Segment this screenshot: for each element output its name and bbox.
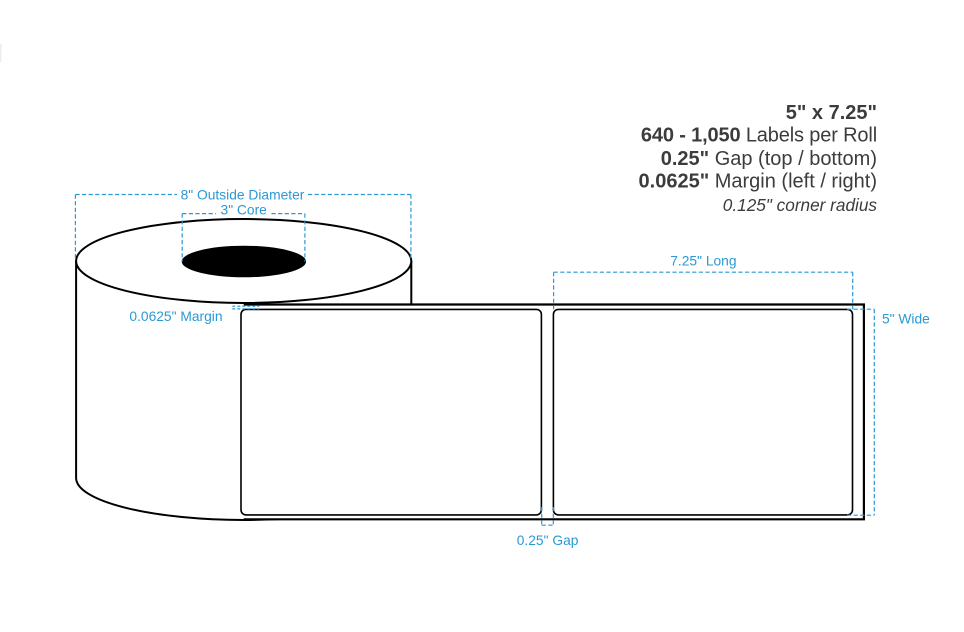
svg-text:5" x 7.25": 5" x 7.25" [786,102,877,124]
svg-text:0.0625" Margin (left / right): 0.0625" Margin (left / right) [639,171,877,193]
svg-text:3" Core: 3" Core [221,203,268,218]
svg-text:5" Wide: 5" Wide [882,312,930,327]
svg-text:0.25" Gap (top / bottom): 0.25" Gap (top / bottom) [661,148,877,170]
svg-text:7.25" Long: 7.25" Long [670,254,736,269]
svg-text:0.0625" Margin: 0.0625" Margin [129,309,222,324]
svg-text:8" Outside Diameter: 8" Outside Diameter [181,187,305,202]
svg-text:0.125" corner radius: 0.125" corner radius [723,195,878,215]
svg-text:0.25" Gap: 0.25" Gap [517,533,579,548]
svg-text:640 - 1,050 Labels per Roll: 640 - 1,050 Labels per Roll [641,125,877,147]
